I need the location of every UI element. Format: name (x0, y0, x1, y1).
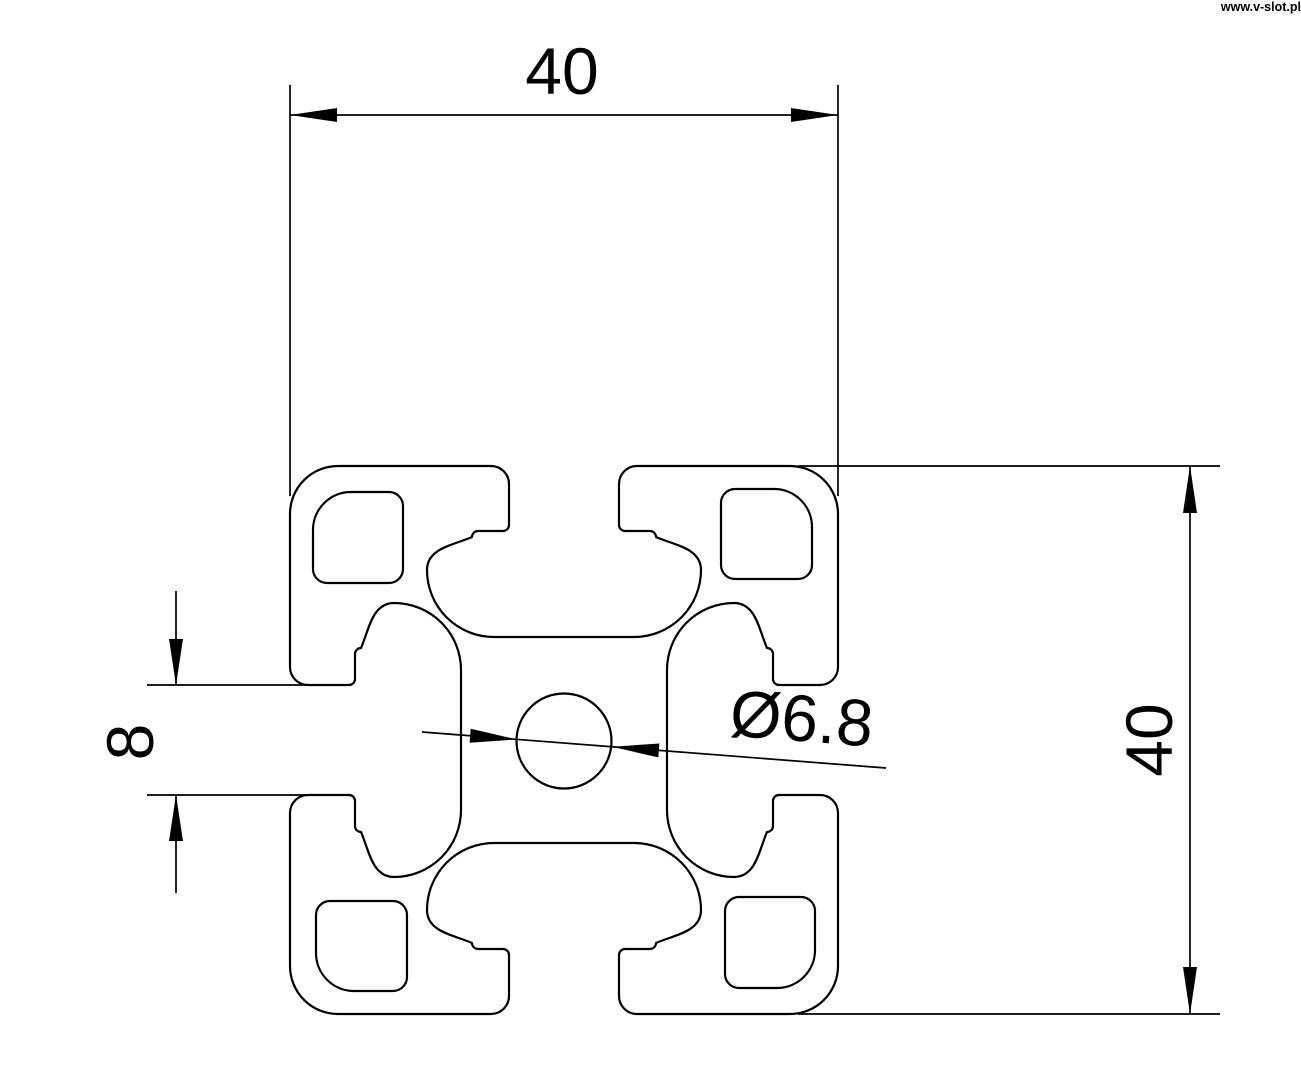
profile-slot-bottom (338, 843, 838, 1014)
arrowhead-right (791, 108, 838, 122)
arrowhead-bottom (1183, 967, 1197, 1014)
arrowhead-down (169, 639, 183, 685)
arrowhead-top (1183, 466, 1197, 513)
profile-slot-top (290, 466, 790, 637)
dimension-slot-opening: 8 (93, 591, 315, 893)
dimension-overall-width: 40 (290, 34, 838, 496)
dimension-center-hole: Ø6.8 (422, 676, 886, 768)
arrowhead-left-pointing (611, 740, 659, 758)
dimension-label-width: 40 (525, 34, 598, 108)
dimension-label-height: 40 (1112, 703, 1186, 776)
arrowhead-left (290, 108, 337, 122)
watermark-text: www.v-slot.pl (1220, 0, 1301, 14)
dimension-label-slot: 8 (93, 724, 167, 761)
profile-slot-left (290, 514, 461, 1014)
arrowhead-right-pointing (470, 729, 518, 747)
dimension-label-hole-diameter: Ø6.8 (728, 676, 876, 761)
technical-drawing-canvas: 40 40 8 (0, 0, 1301, 1088)
technical-drawing-page: 40 40 8 (0, 0, 1301, 1088)
arrowhead-up (169, 795, 183, 841)
